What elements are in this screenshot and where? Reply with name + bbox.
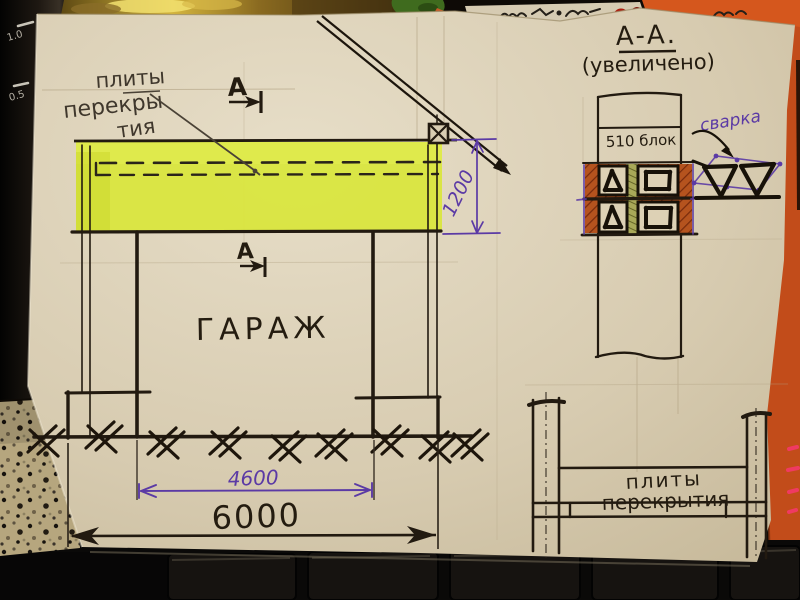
- right-foundation-step: [356, 397, 440, 398]
- slab-detail-line2: перекрытия: [601, 487, 729, 515]
- dim-4600-label: 4600: [227, 465, 279, 491]
- highlighted-slab-band: [74, 140, 457, 232]
- dim-6000-label: 6000: [211, 496, 302, 537]
- keyboard-key: [450, 550, 580, 600]
- section-subtitle: (увеличено): [581, 49, 715, 78]
- garage-room-label: ГАРАЖ: [196, 311, 331, 348]
- slab-line-2: [533, 516, 766, 517]
- crossed-box-marker: [429, 124, 448, 143]
- section-title: А-А.: [615, 20, 677, 52]
- block-size-label: 510 блок: [606, 131, 677, 151]
- section-letter-top: А: [227, 72, 248, 102]
- lintel-line: [72, 231, 441, 232]
- block-assembly: [577, 162, 701, 235]
- scene-canvas: 1.0 0.5 плиты перекры тия А А: [0, 0, 800, 600]
- left-foundation-step: [66, 392, 150, 393]
- photo-of-hand-drawn-garage-plan: 1.0 0.5 плиты перекры тия А А: [0, 0, 800, 600]
- keyboard-key: [168, 554, 296, 600]
